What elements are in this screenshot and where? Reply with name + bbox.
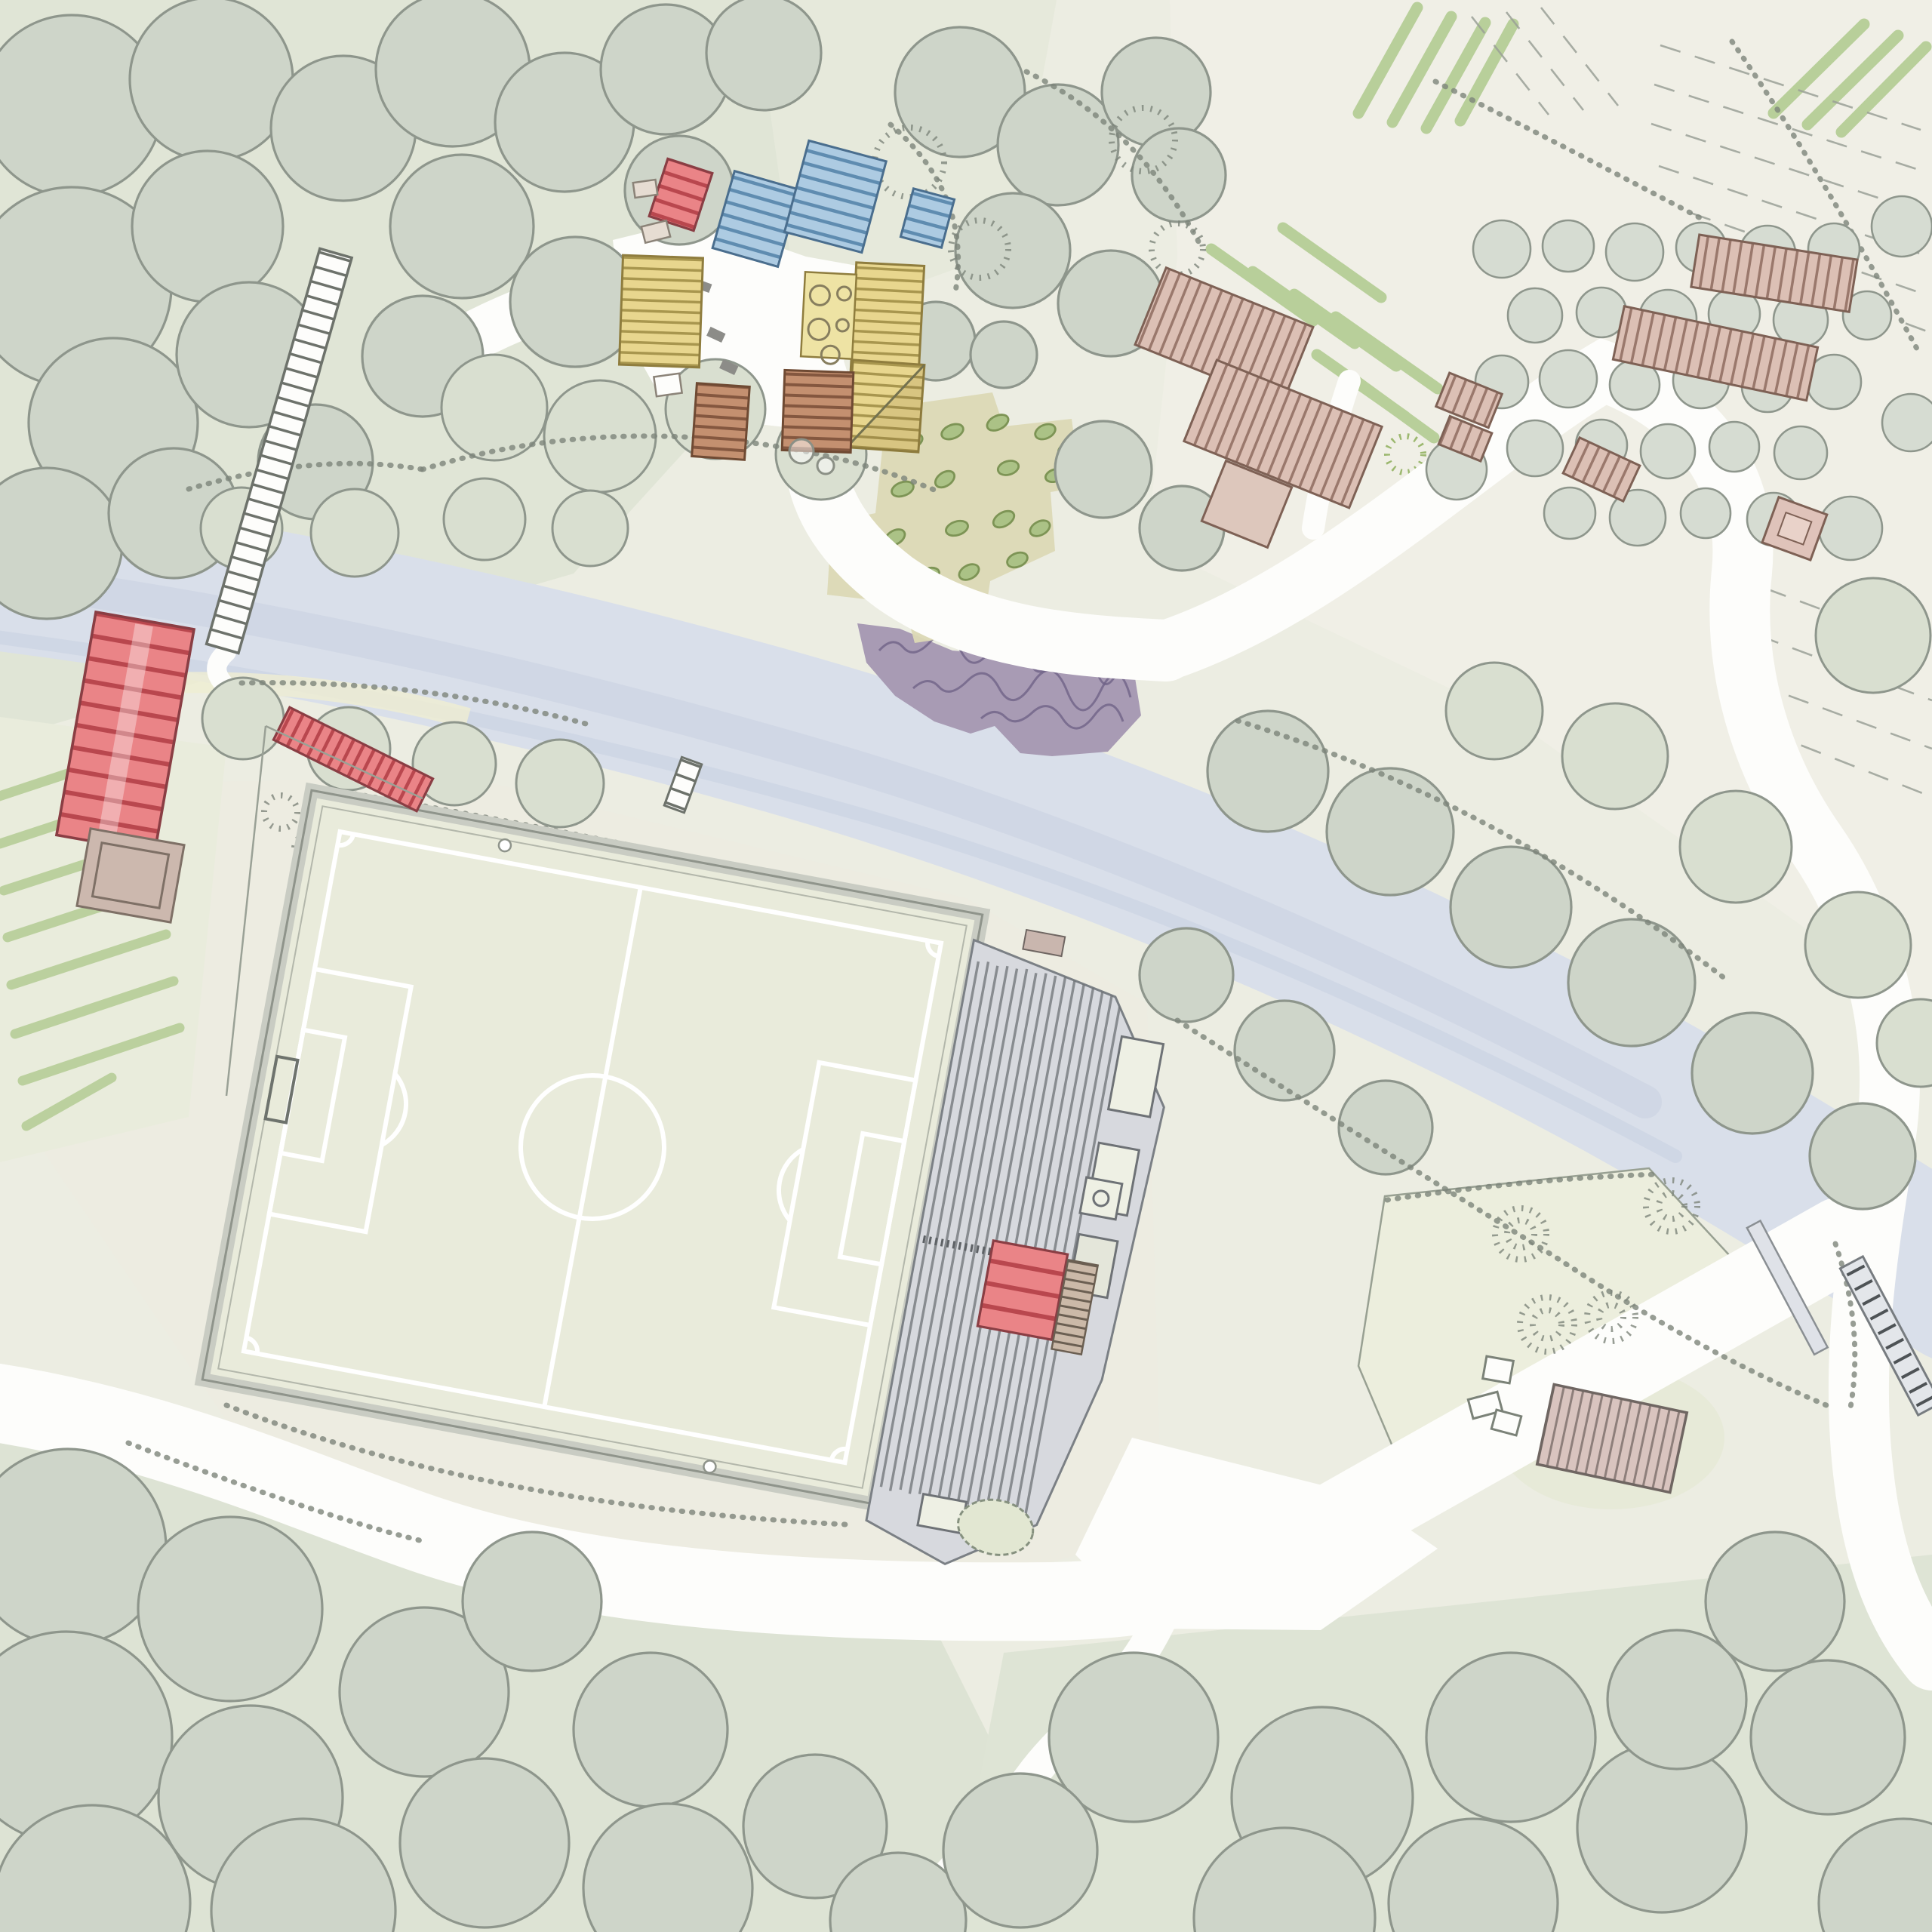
courtyard-tables [801, 272, 857, 365]
barn-porch [77, 829, 184, 922]
football-pitch [202, 790, 983, 1503]
site-plan-canvas [0, 0, 1932, 1932]
barn-hatched-yellow [847, 360, 924, 452]
site-plan-drawing [0, 0, 1932, 1932]
